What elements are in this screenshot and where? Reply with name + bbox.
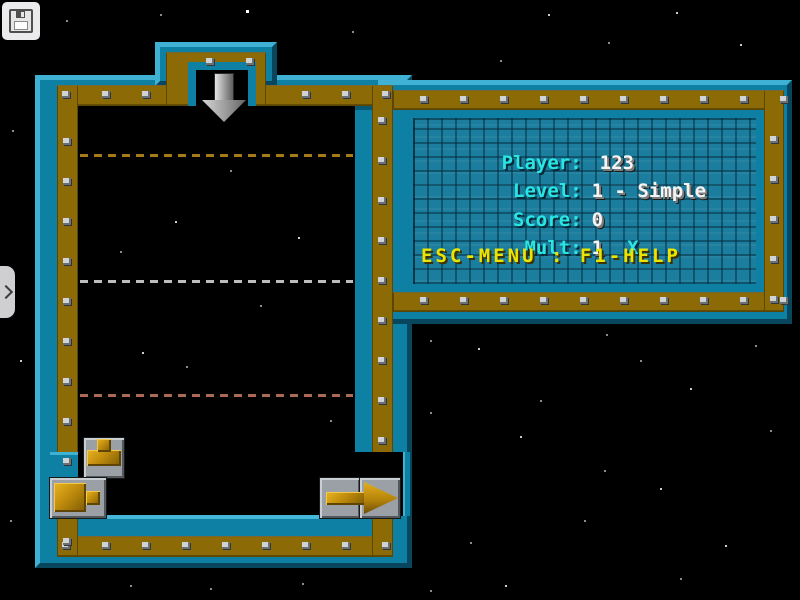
guide-line (80, 280, 353, 283)
drop-arrow-icon (202, 72, 246, 122)
rivet (142, 542, 150, 549)
status-panel: Player:123 Level:1 - Simple Score:0 Mult… (413, 118, 756, 284)
drop-arrow-head (202, 100, 246, 122)
rivet (620, 96, 628, 103)
star (540, 400, 542, 402)
hud-help-text: ESC-MENU : F1-HELP (421, 245, 681, 267)
rivet (342, 542, 350, 549)
rivet (63, 298, 71, 305)
star (608, 42, 610, 44)
pipe-tee-bar (87, 450, 121, 466)
star (10, 520, 12, 522)
guide-line (80, 394, 353, 397)
star (548, 14, 550, 16)
save-button[interactable] (2, 2, 40, 40)
rivet (378, 117, 386, 124)
rivet (770, 176, 778, 183)
star (660, 488, 662, 490)
rivet (540, 297, 548, 304)
star (246, 10, 249, 13)
star (725, 545, 727, 547)
panel-band-top (393, 90, 784, 110)
star (584, 520, 586, 522)
sidebar-handle[interactable] (0, 266, 15, 318)
hud-level-row: Level:1 - Simple (413, 158, 756, 182)
rivet (700, 96, 708, 103)
hud-player-row: Player:123 (413, 130, 756, 154)
rivet (580, 96, 588, 103)
rivet (206, 58, 214, 65)
game-screen: Player:123 Level:1 - Simple Score:0 Mult… (0, 0, 800, 600)
rivet (62, 91, 70, 98)
star (12, 130, 14, 132)
faucet-body (54, 483, 86, 512)
star (606, 334, 608, 336)
star (478, 348, 480, 350)
rivet (420, 96, 428, 103)
rivet (63, 538, 71, 545)
rivet (302, 91, 310, 98)
rivet (102, 542, 110, 549)
rivet (378, 277, 386, 284)
rivet (382, 542, 390, 549)
panel-band-right (764, 90, 784, 312)
star (230, 170, 232, 172)
star (505, 585, 507, 587)
star (604, 470, 606, 472)
rivet (770, 216, 778, 223)
rivet (378, 237, 386, 244)
rivet (63, 378, 71, 385)
rivet (63, 218, 71, 225)
star (142, 352, 144, 354)
rivet (63, 178, 71, 185)
star (66, 20, 68, 22)
rivet (660, 96, 668, 103)
rivet (740, 96, 748, 103)
pipe-tee-stub (97, 439, 111, 452)
rivet (660, 297, 668, 304)
panel-band-bottom (393, 292, 784, 312)
rivet (378, 357, 386, 364)
star (260, 305, 262, 307)
star (298, 237, 300, 239)
rivet (63, 258, 71, 265)
rivet (222, 542, 230, 549)
rivet (63, 138, 71, 145)
rivet (740, 297, 748, 304)
playfield-inner-ledge-bottom (78, 515, 372, 536)
guide-line (80, 154, 353, 157)
star (120, 251, 122, 253)
rivet (63, 418, 71, 425)
rivet (302, 542, 310, 549)
star (755, 345, 757, 347)
chevron-right-icon (0, 285, 13, 299)
star (430, 412, 432, 414)
rivet (342, 91, 350, 98)
rivet (63, 458, 71, 465)
rivet (540, 96, 548, 103)
rivet (500, 297, 508, 304)
star (740, 44, 742, 46)
hud-score-row: Score:0 (413, 187, 756, 211)
rivet (382, 91, 390, 98)
rivet (102, 91, 110, 98)
star (680, 578, 682, 580)
rivet (460, 96, 468, 103)
star (175, 221, 177, 223)
rivet (378, 437, 386, 444)
star (210, 588, 212, 590)
star (640, 360, 642, 362)
rivet (460, 297, 468, 304)
pipe-tee-piece[interactable] (84, 438, 124, 478)
rivet (378, 397, 386, 404)
rivet (420, 297, 428, 304)
exit-arrow-piece[interactable] (320, 478, 400, 518)
rivet (246, 58, 254, 65)
star (690, 388, 692, 390)
rivet (700, 297, 708, 304)
rivet (378, 197, 386, 204)
rivet (770, 296, 778, 303)
star (302, 583, 304, 585)
hud-mult-row: Mult:1X (413, 215, 756, 239)
star (430, 340, 432, 342)
rivet (770, 256, 778, 263)
rivet (500, 96, 508, 103)
star (520, 436, 522, 438)
faucet-nozzle (86, 491, 100, 505)
rivet (780, 297, 788, 304)
rivet (378, 157, 386, 164)
rivet (580, 297, 588, 304)
star (676, 12, 678, 14)
star (500, 60, 502, 62)
drop-arrow-shaft (215, 74, 233, 102)
star (130, 585, 132, 587)
rivet (182, 542, 190, 549)
rivet (378, 317, 386, 324)
floppy-disk-icon (9, 9, 33, 33)
star (186, 366, 188, 368)
rivet (63, 338, 71, 345)
faucet-piece[interactable] (50, 478, 106, 518)
rivet (142, 91, 150, 98)
rivet (262, 542, 270, 549)
star (20, 360, 22, 362)
star (770, 430, 772, 432)
star (430, 590, 432, 592)
exit-arrow-bar (326, 492, 366, 505)
right-alcove-edge (403, 452, 412, 516)
rivet (780, 96, 788, 103)
star (330, 420, 332, 422)
rivet (620, 297, 628, 304)
rivet (770, 136, 778, 143)
star (352, 31, 354, 33)
star (470, 542, 472, 544)
star (160, 14, 162, 16)
